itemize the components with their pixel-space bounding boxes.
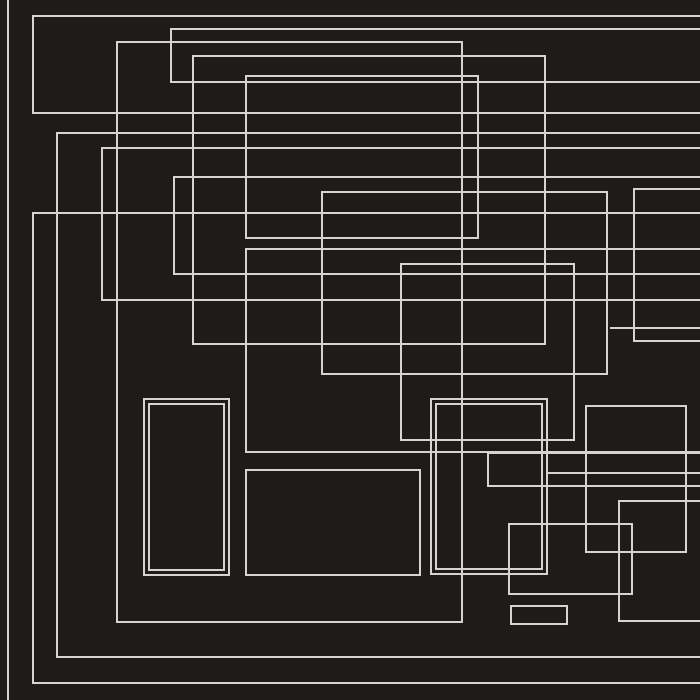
right-short-line-lower (548, 472, 700, 474)
right-short-line-upper (610, 327, 700, 329)
bottom-center-rect (508, 523, 633, 595)
bottom-wide-rect (245, 469, 421, 576)
artwork-canvas (0, 0, 700, 700)
small-bar-rect (510, 605, 568, 625)
right-low-band-rect (487, 452, 700, 487)
bottom-tall-inner-rect (148, 403, 225, 571)
